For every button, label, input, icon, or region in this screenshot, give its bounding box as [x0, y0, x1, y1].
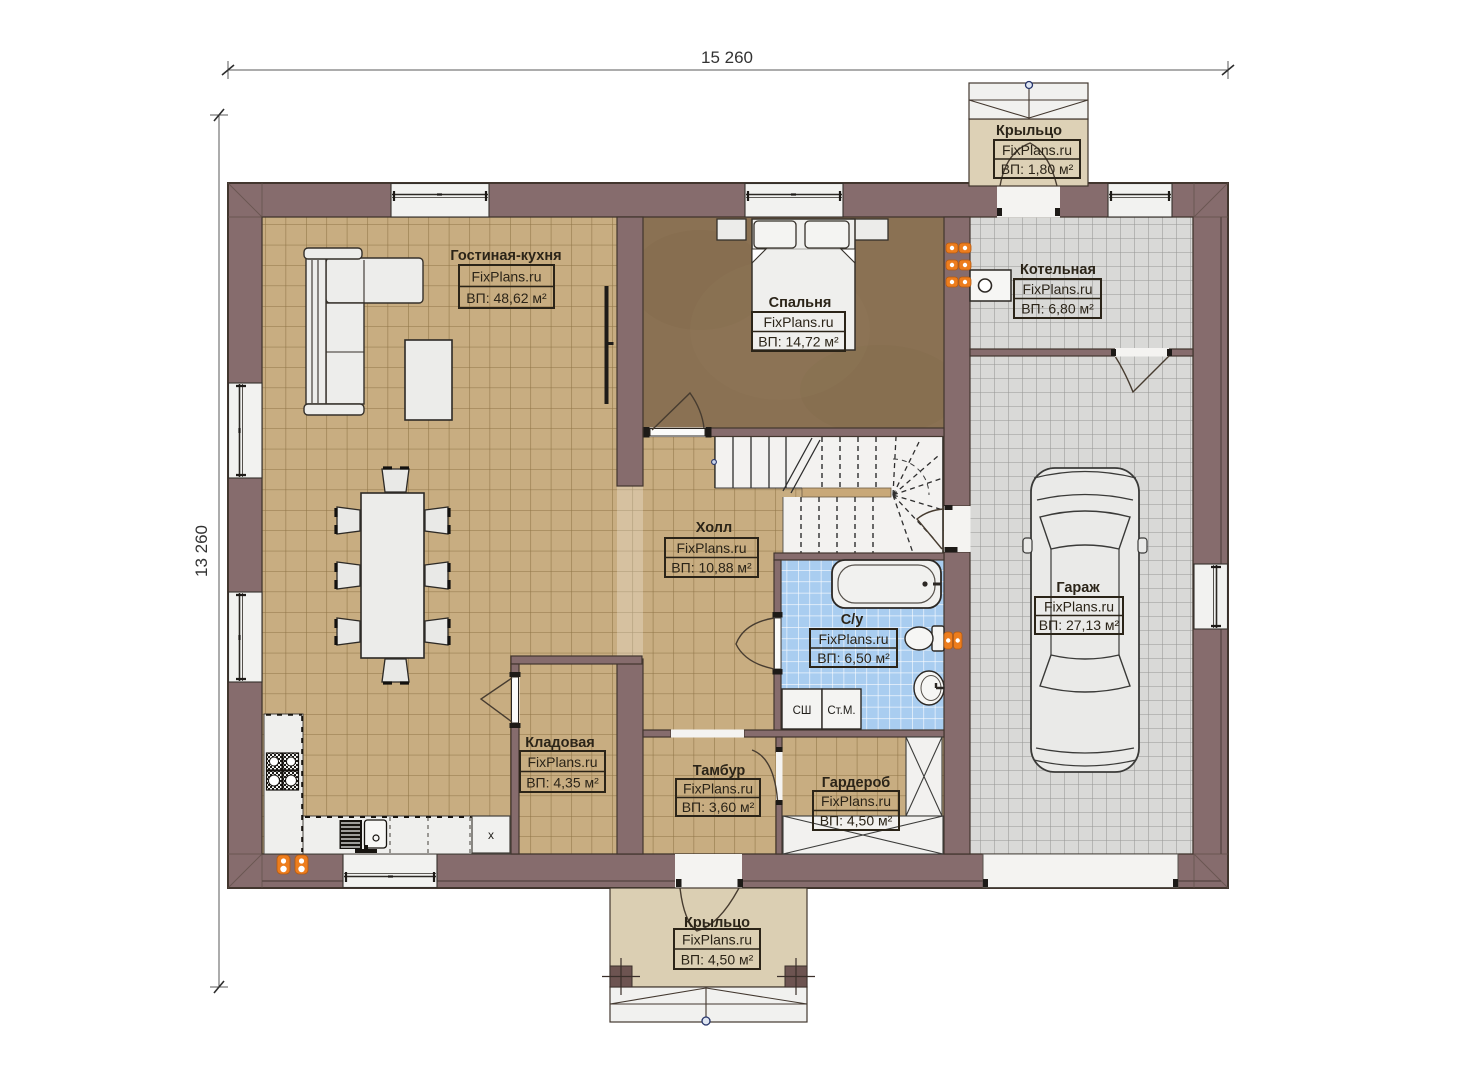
- svg-text:Ст.М.: Ст.М.: [827, 705, 855, 717]
- svg-text:ВП: 4,50 м²: ВП: 4,50 м²: [681, 952, 754, 968]
- svg-text:ВП: 48,62 м²: ВП: 48,62 м²: [466, 290, 547, 306]
- svg-text:Крыльцо: Крыльцо: [996, 123, 1062, 139]
- svg-text:Гардероб: Гардероб: [822, 775, 891, 791]
- svg-text:FixPlans.ru: FixPlans.ru: [818, 631, 888, 647]
- svg-text:FixPlans.ru: FixPlans.ru: [683, 781, 753, 797]
- svg-text:ВП: 6,50 м²: ВП: 6,50 м²: [817, 650, 890, 666]
- svg-text:FixPlans.ru: FixPlans.ru: [821, 793, 891, 809]
- svg-text:ВП: 6,80 м²: ВП: 6,80 м²: [1021, 301, 1094, 317]
- svg-text:СШ: СШ: [793, 705, 812, 717]
- svg-text:ВП: 4,35 м²: ВП: 4,35 м²: [526, 775, 599, 791]
- svg-text:ВП: 4,50 м²: ВП: 4,50 м²: [820, 813, 893, 829]
- svg-text:Гараж: Гараж: [1056, 580, 1100, 596]
- svg-text:ВП: 10,88 м²: ВП: 10,88 м²: [671, 560, 752, 576]
- svg-text:FixPlans.ru: FixPlans.ru: [1002, 142, 1072, 158]
- svg-text:Тамбур: Тамбур: [693, 763, 746, 779]
- svg-text:FixPlans.ru: FixPlans.ru: [682, 932, 752, 948]
- svg-text:13 260: 13 260: [192, 525, 211, 577]
- svg-text:FixPlans.ru: FixPlans.ru: [676, 540, 746, 556]
- svg-text:Спальня: Спальня: [769, 295, 832, 311]
- svg-text:ВП: 1,80 м²: ВП: 1,80 м²: [1001, 161, 1074, 177]
- svg-text:FixPlans.ru: FixPlans.ru: [1022, 281, 1092, 297]
- svg-text:FixPlans.ru: FixPlans.ru: [471, 269, 541, 285]
- svg-text:Гостиная-кухня: Гостиная-кухня: [450, 248, 561, 264]
- svg-text:С/у: С/у: [841, 612, 864, 628]
- svg-text:Котельная: Котельная: [1020, 262, 1096, 278]
- svg-text:FixPlans.ru: FixPlans.ru: [763, 314, 833, 330]
- svg-text:15 260: 15 260: [701, 48, 753, 67]
- svg-text:ВП: 14,72 м²: ВП: 14,72 м²: [758, 334, 839, 350]
- svg-text:x: x: [488, 828, 494, 842]
- svg-text:Холл: Холл: [696, 520, 732, 536]
- svg-text:Кладовая: Кладовая: [525, 735, 594, 751]
- svg-text:ВП: 3,60 м²: ВП: 3,60 м²: [682, 799, 755, 815]
- svg-text:FixPlans.ru: FixPlans.ru: [527, 754, 597, 770]
- svg-text:ВП: 27,13 м²: ВП: 27,13 м²: [1039, 617, 1120, 633]
- svg-text:FixPlans.ru: FixPlans.ru: [1044, 599, 1114, 615]
